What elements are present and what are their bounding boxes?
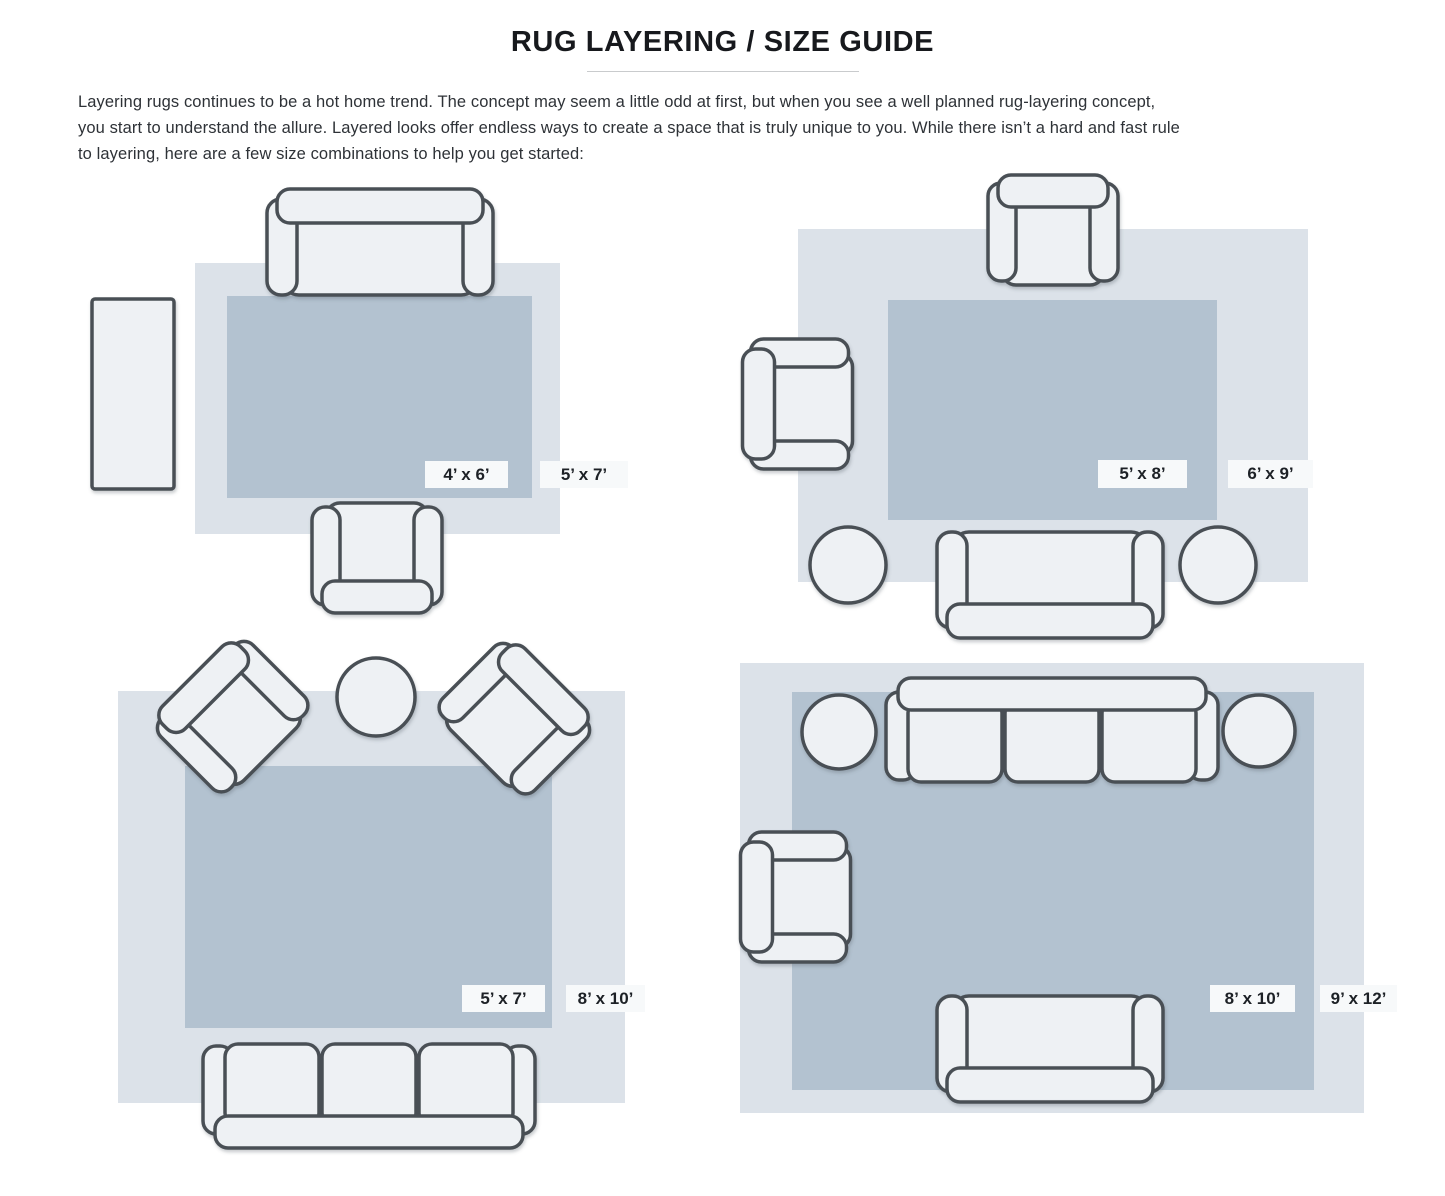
loveseat-sofa: [267, 189, 493, 295]
console-runner: [92, 299, 174, 489]
rug-size-guide-page: RUG LAYERING / SIZE GUIDE Layering rugs …: [0, 0, 1445, 1196]
diagram-bottom-left: [118, 630, 625, 1148]
three-seat-sofa: [886, 678, 1218, 782]
round-side-table: [810, 527, 886, 603]
round-side-table: [1223, 695, 1295, 767]
armchair: [741, 832, 851, 962]
round-side-table: [802, 695, 876, 769]
outer-rug-size-label: 6’ x 9’: [1228, 460, 1313, 488]
three-seat-sofa: [203, 1044, 535, 1148]
rug-diagrams-canvas: [0, 0, 1445, 1196]
diagram-top-left: [92, 189, 560, 613]
inner-rug-size-label: 5’ x 7’: [462, 985, 545, 1012]
outer-rug-size-label: 9’ x 12’: [1320, 985, 1397, 1012]
diagram-top-right: [743, 175, 1309, 638]
loveseat-sofa: [937, 996, 1163, 1102]
outer-rug-size-label: 5’ x 7’: [540, 461, 628, 488]
outer-rug-size-label: 8’ x 10’: [566, 985, 645, 1012]
inner-rug-size-label: 5’ x 8’: [1098, 460, 1187, 488]
inner-rug-size-label: 8’ x 10’: [1210, 985, 1295, 1012]
armchair: [312, 503, 442, 613]
diagram-bottom-right: [740, 663, 1364, 1113]
round-side-table: [337, 658, 415, 736]
armchair: [743, 339, 853, 469]
loveseat-sofa: [937, 532, 1163, 638]
inner-rug-size-label: 4’ x 6’: [425, 461, 508, 488]
armchair: [988, 175, 1118, 285]
round-side-table: [1180, 527, 1256, 603]
